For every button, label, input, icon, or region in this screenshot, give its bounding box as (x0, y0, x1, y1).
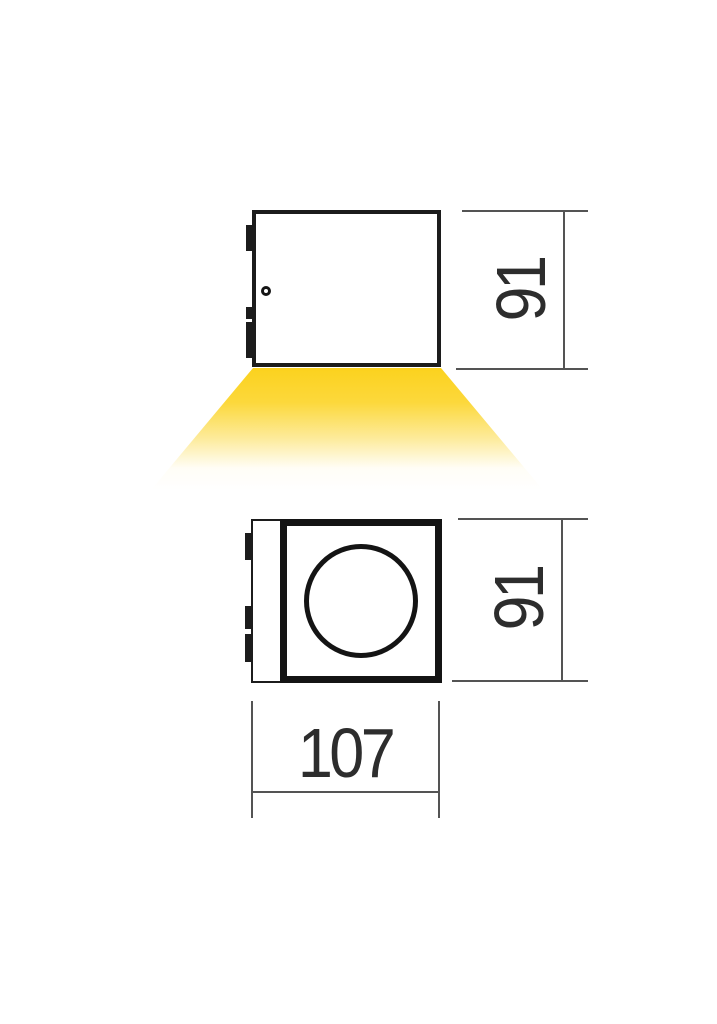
mounting-tab-icon (246, 322, 253, 358)
mounting-tab-icon (245, 606, 252, 629)
dimension-line (561, 518, 563, 682)
mounting-tab-icon (245, 634, 252, 662)
dimension-extension-line (458, 518, 588, 520)
screw-hole-icon (261, 286, 271, 296)
dimension-extension-line (456, 368, 588, 370)
mounting-tab-icon (246, 225, 253, 251)
dimension-extension-line (251, 701, 253, 818)
bottom-height-dimension-label: 91 (484, 568, 554, 631)
dimension-extension-line (452, 680, 588, 682)
lamp-body-front (252, 210, 441, 367)
dimension-line (563, 210, 565, 370)
light-beam (151, 368, 543, 490)
drawing-canvas: 91 91 107 (0, 0, 717, 1024)
lens-circle (304, 544, 418, 658)
width-dimension-label: 107 (298, 718, 392, 788)
dimension-extension-line (438, 701, 440, 818)
front-height-dimension-label: 91 (486, 259, 556, 322)
dimension-extension-line (462, 210, 588, 212)
mounting-tab-icon (246, 307, 253, 319)
mounting-tab-icon (245, 533, 252, 560)
